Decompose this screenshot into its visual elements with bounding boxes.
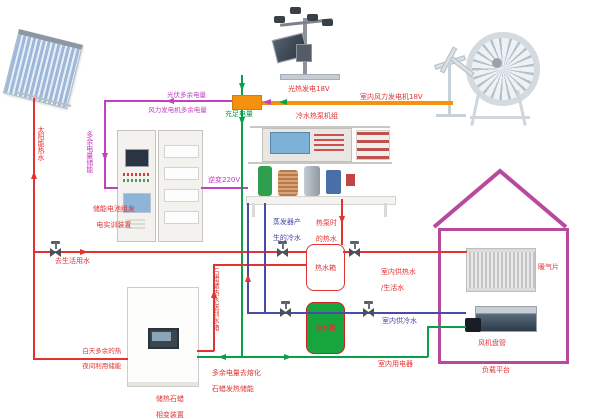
day-excess-line2: 夜间利用储能 — [82, 362, 121, 370]
arrow-left-icon — [218, 354, 226, 360]
bench-green-vessel — [258, 166, 272, 196]
arrow-right-icon — [80, 249, 88, 255]
phase-change-device-image — [127, 287, 199, 387]
domestic-water-label: 去生活用水 — [55, 257, 90, 265]
arrow-up-icon — [245, 274, 251, 282]
indoor-hot-line1: 室内供热水 — [381, 268, 416, 276]
indoor-cold-label: 室内供冷水 — [382, 317, 417, 325]
valve-icon — [363, 301, 374, 317]
radiator-image — [466, 248, 536, 292]
bench-shelf — [248, 162, 392, 164]
fan-coil-image — [465, 302, 537, 337]
solar-collector-image — [4, 26, 82, 110]
hot-water-tank-label: 热水箱 — [315, 263, 336, 273]
evaporator-line1: 蒸发器产 — [273, 218, 301, 226]
arrow-down-icon — [239, 117, 245, 125]
paraffin-outlet-pipe — [197, 350, 214, 352]
arrow-down-icon — [102, 153, 108, 161]
load-platform-label: 负载平台 — [482, 366, 510, 374]
evaporator-line2: 生的冷水 — [273, 234, 301, 242]
cabinet-screen — [125, 149, 149, 167]
light-tracker-image — [266, 6, 358, 86]
tracker-lamp — [290, 7, 301, 14]
heatpump-hot-line2: 的热水 — [316, 235, 337, 243]
arrow-down-icon — [239, 83, 245, 91]
solar-hot-water-pipe — [33, 98, 35, 360]
phase-device-screen — [148, 328, 179, 349]
excess-power-to-cabinet — [104, 187, 118, 189]
phase-device-display — [152, 332, 171, 341]
turbine-base — [436, 114, 466, 117]
valve-icon — [349, 241, 360, 257]
arrow-up-icon — [31, 171, 37, 179]
system-diagram: 热水箱 冷水箱 — [0, 0, 600, 419]
heat-pump-bench-image — [246, 120, 394, 208]
excess-power-drop — [104, 100, 106, 189]
paraffin-to-tank-pipe — [213, 264, 307, 266]
indoor-appliance-label: 室内用电器 — [378, 360, 413, 368]
fan-coil-label: 风机盘管 — [478, 339, 506, 347]
sufficient-power-label: 充足电量 — [225, 110, 253, 118]
fan-coil-power-line — [427, 326, 466, 328]
solar-hot-water-label: 太阳能热水 — [37, 126, 45, 174]
fan-hub — [492, 58, 502, 68]
battery-shelf — [164, 145, 199, 158]
heat-pump-label: 冷水热泵机组 — [296, 112, 338, 120]
radiator-label: 暖气片 — [538, 263, 559, 271]
melt-line1: 多余电量去熔化 — [212, 369, 261, 377]
arrow-right-icon — [284, 354, 292, 360]
day-excess-line1: 白天多余的热 — [82, 347, 121, 355]
arrow-down-icon — [339, 216, 345, 224]
excess-pv-line2: 风力发电机多余电量 — [148, 106, 207, 114]
tracker-lamp — [322, 19, 333, 26]
bench-table — [246, 196, 396, 205]
house-roof — [425, 162, 575, 232]
bench-valve-block — [346, 174, 355, 186]
battery-shelf — [164, 189, 199, 202]
valve-icon — [280, 301, 291, 317]
battery-device-label: 储能电池组发 电实训装置 — [84, 197, 135, 237]
day-excess-label: 白天多余的热 夜间利用储能 — [74, 341, 118, 378]
excess-pv-label: 光伏多余电量 风力发电机多余电量 — [140, 85, 206, 122]
pv-generation-label: 光热发电18V — [288, 85, 330, 93]
battery-shelf — [164, 211, 199, 224]
heatpump-hot-line1: 热泵时 — [316, 219, 337, 227]
cabinet-led-row — [123, 179, 149, 182]
arrow-left-icon — [263, 99, 271, 105]
tracker-controller — [296, 44, 312, 62]
valve-icon — [50, 241, 61, 257]
bench-leg — [252, 203, 255, 217]
fan-coil-power-riser — [427, 327, 429, 357]
bench-compressor — [326, 170, 341, 194]
indoor-hot-label: 室内供热水 /生活水 — [372, 260, 416, 300]
tracker-base — [280, 74, 340, 80]
fan-coil-body — [475, 306, 537, 332]
main-power-drop — [241, 108, 243, 358]
bench-gauges — [356, 130, 390, 160]
paraffin-to-tank-label: 石蜡储热水送到水箱 — [212, 268, 220, 308]
bench-screen — [270, 132, 310, 154]
battery-cabinet-image — [158, 130, 203, 242]
melt-paraffin-label: 多余电量去熔化 石蜡发热储能 — [203, 361, 261, 401]
fan-frame-bar — [470, 116, 530, 119]
phase-device-line1: 储热石蜡 — [156, 395, 184, 403]
phase-device-line2: 相变装置 — [156, 411, 184, 419]
heatpump-hot-label: 热泵时 的热水 — [307, 211, 337, 251]
wind-generation-label: 室内风力发电机18V — [360, 93, 423, 101]
fan-frame-leg — [470, 90, 480, 126]
bench-copper-coil — [278, 170, 298, 196]
phase-device-label: 储热石蜡 相变装置 — [147, 387, 184, 419]
cabinet-led-row — [123, 173, 149, 176]
wind-turbine-image — [428, 28, 558, 120]
cold-water-tank: 冷水箱 — [306, 302, 345, 354]
bench-buttons — [314, 133, 344, 151]
fan-coil-motor — [465, 318, 481, 332]
tracker-lamp — [307, 14, 318, 21]
excess-storage-label: 多余电量储能 — [85, 131, 93, 159]
cold-water-tank-label: 冷水箱 — [315, 323, 336, 333]
battery-shelf — [164, 167, 199, 180]
cold-return-pipe — [247, 203, 249, 313]
bench-steel-tank — [304, 166, 320, 196]
inverter-label: 逆变220V — [208, 176, 240, 184]
battery-device-line1: 储能电池组发 — [93, 205, 135, 213]
indoor-hot-line2: /生活水 — [381, 284, 404, 292]
arrow-left-icon — [279, 99, 287, 105]
turbine-pole — [448, 64, 451, 116]
melt-line2: 石蜡发热储能 — [212, 385, 254, 393]
evaporator-cold-label: 蒸发器产 生的冷水 — [264, 210, 301, 250]
tracker-lamp — [274, 16, 285, 23]
battery-device-line2: 电实训装置 — [96, 221, 131, 229]
wind-power-line — [260, 101, 453, 105]
bench-leg — [384, 203, 387, 217]
appliance-power-line — [197, 356, 428, 358]
power-junction-box — [232, 95, 262, 110]
excess-pv-line1: 光伏多余电量 — [167, 91, 206, 99]
tank-to-radiator-pipe — [343, 251, 467, 253]
